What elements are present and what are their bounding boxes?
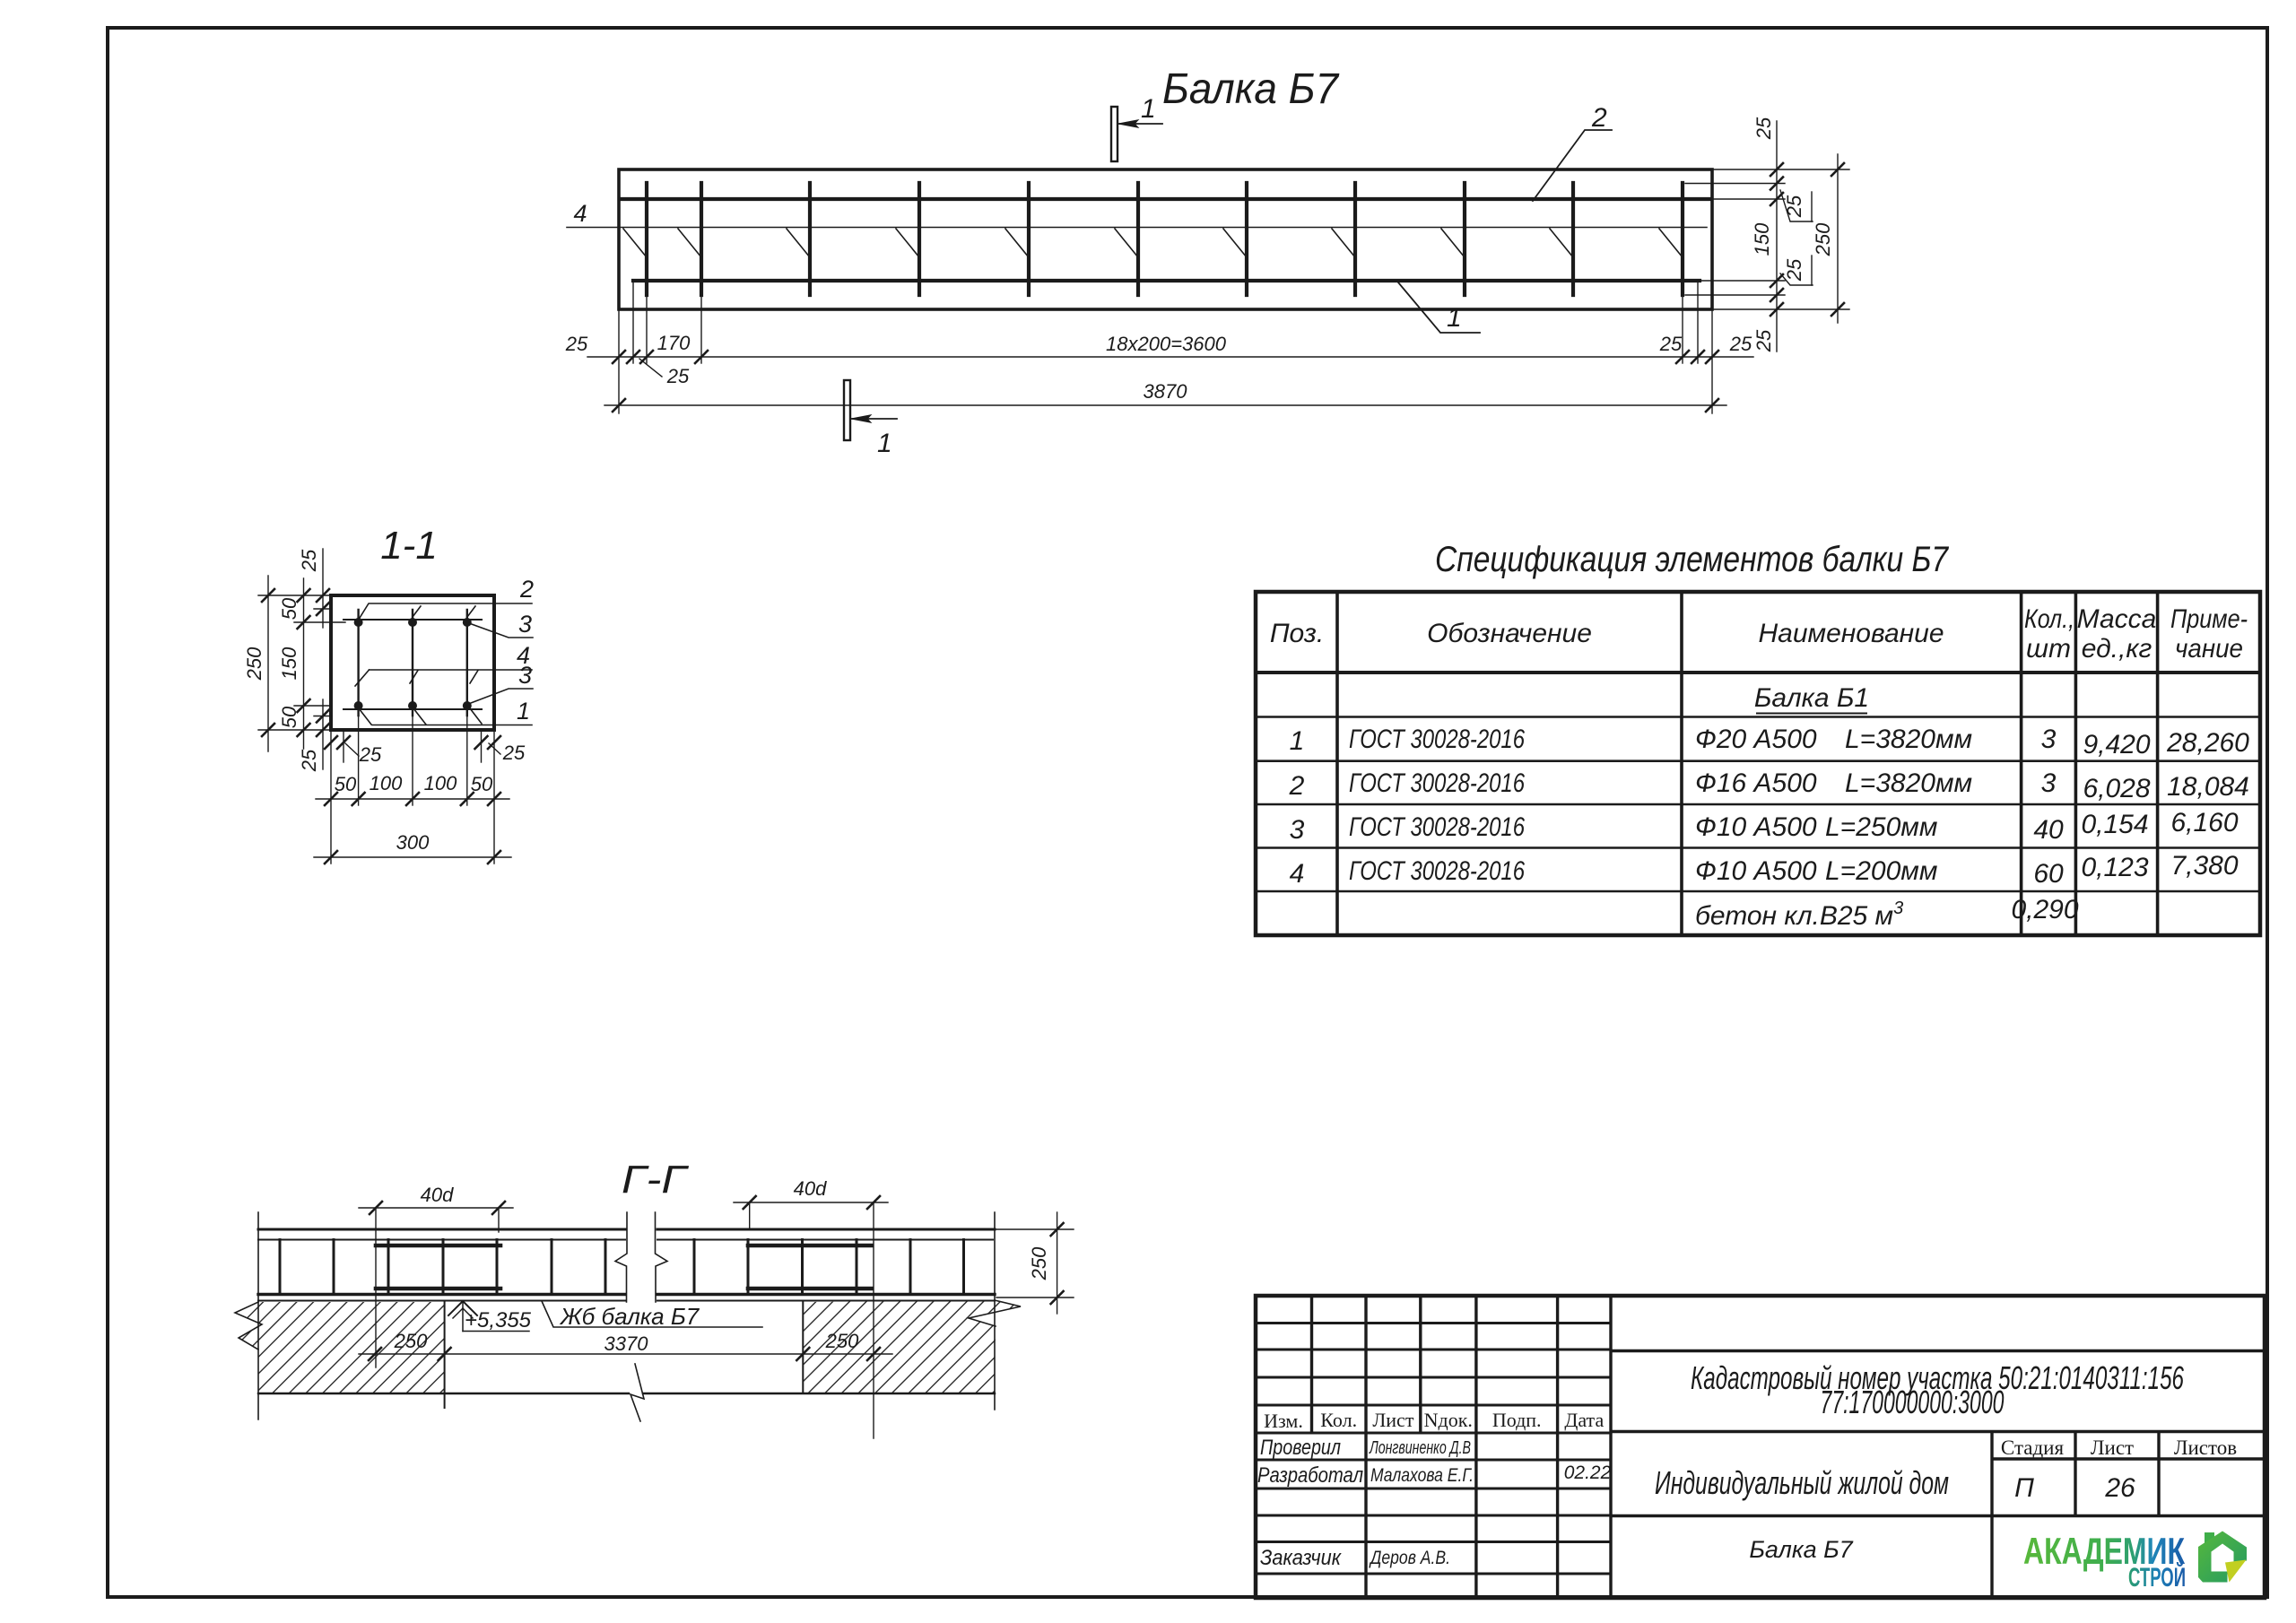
svg-text:Стадия: Стадия xyxy=(2001,1436,2065,1459)
svg-text:1-1: 1-1 xyxy=(380,524,438,568)
svg-text:1: 1 xyxy=(1141,94,1156,124)
svg-text:26: 26 xyxy=(2104,1473,2135,1503)
svg-text:2: 2 xyxy=(1591,103,1607,133)
svg-text:25: 25 xyxy=(565,333,588,355)
svg-text:250: 250 xyxy=(825,1330,859,1352)
svg-text:Подп.: Подп. xyxy=(1492,1409,1542,1431)
svg-text:77:170000000:3000: 77:170000000:3000 xyxy=(1821,1384,2005,1420)
svg-text:25: 25 xyxy=(1783,258,1805,282)
svg-text:25: 25 xyxy=(1752,117,1775,140)
svg-text:25: 25 xyxy=(359,743,382,766)
svg-text:Ф10 А500: Ф10 А500 xyxy=(1695,856,1817,886)
svg-text:1: 1 xyxy=(1447,303,1462,333)
svg-text:250: 250 xyxy=(243,647,265,681)
svg-text:Кол.,: Кол., xyxy=(2024,604,2074,634)
svg-text:Ф10 А500: Ф10 А500 xyxy=(1695,812,1817,842)
svg-text:25: 25 xyxy=(502,742,526,764)
svg-text:0,154: 0,154 xyxy=(2081,810,2148,839)
svg-text:0,123: 0,123 xyxy=(2081,853,2148,882)
svg-text:0,290: 0,290 xyxy=(2011,895,2078,924)
svg-text:50: 50 xyxy=(471,773,493,795)
svg-text:3: 3 xyxy=(1290,815,1305,845)
svg-text:25: 25 xyxy=(666,365,690,387)
svg-text:Г-Г: Г-Г xyxy=(622,1158,690,1202)
svg-text:Обозначение: Обозначение xyxy=(1427,619,1592,648)
svg-text:Индивидуальный жилой дом: Индивидуальный жилой дом xyxy=(1655,1464,1949,1501)
svg-text:Ф20 А500: Ф20 А500 xyxy=(1695,725,1817,754)
svg-text:7,380: 7,380 xyxy=(2170,851,2238,881)
svg-text:300: 300 xyxy=(396,831,430,854)
svg-text:40d: 40d xyxy=(794,1177,827,1200)
svg-text:50: 50 xyxy=(335,773,357,795)
svg-text:Малахова Е.Г.: Малахова Е.Г. xyxy=(1370,1465,1474,1486)
svg-text:4: 4 xyxy=(1290,859,1305,889)
svg-text:25: 25 xyxy=(1783,195,1805,218)
svg-text:Спецификация элементов балки Б: Спецификация элементов балки Б7 xyxy=(1435,540,1949,579)
svg-text:2: 2 xyxy=(519,576,534,603)
svg-text:Ф16 А500: Ф16 А500 xyxy=(1695,768,1817,798)
svg-text:250: 250 xyxy=(1812,222,1834,256)
svg-text:Приме-: Приме- xyxy=(2170,604,2248,634)
svg-text:бетон кл.В25 м3: бетон кл.В25 м3 xyxy=(1695,898,1903,931)
svg-text:ГОСТ 30028-2016: ГОСТ 30028-2016 xyxy=(1349,856,1525,886)
svg-text:6,160: 6,160 xyxy=(2170,808,2238,838)
svg-text:L=200мм: L=200мм xyxy=(1825,856,1937,886)
svg-text:18х200=3600: 18х200=3600 xyxy=(1106,333,1227,355)
svg-text:Деров А.В.: Деров А.В. xyxy=(1369,1548,1450,1568)
svg-text:чание: чание xyxy=(2175,634,2243,664)
svg-text:Листов: Листов xyxy=(2174,1436,2237,1459)
svg-text:25: 25 xyxy=(1729,333,1752,355)
svg-text:150: 150 xyxy=(1751,222,1773,256)
svg-text:Заказчик: Заказчик xyxy=(1260,1546,1343,1570)
svg-text:L=3820мм: L=3820мм xyxy=(1845,725,1972,754)
svg-text:4: 4 xyxy=(573,200,587,227)
svg-text:Разработал: Разработал xyxy=(1257,1463,1363,1488)
svg-text:40d: 40d xyxy=(421,1184,454,1206)
svg-text:3: 3 xyxy=(518,611,532,638)
svg-text:L=250мм: L=250мм xyxy=(1825,812,1937,842)
svg-text:ГОСТ 30028-2016: ГОСТ 30028-2016 xyxy=(1349,768,1525,798)
svg-text:3: 3 xyxy=(518,662,532,689)
svg-text:ед.,кг: ед.,кг xyxy=(2082,634,2152,664)
svg-text:250: 250 xyxy=(1028,1246,1050,1280)
svg-text:9,420: 9,420 xyxy=(2083,730,2150,759)
svg-text:50: 50 xyxy=(278,597,300,620)
svg-text:25: 25 xyxy=(298,549,320,572)
svg-text:Жб балка Б7: Жб балка Б7 xyxy=(559,1303,700,1330)
svg-text:Лонгвиненко Д.В: Лонгвиненко Д.В xyxy=(1369,1438,1471,1458)
svg-text:250: 250 xyxy=(394,1330,428,1352)
svg-text:100: 100 xyxy=(370,772,403,794)
svg-text:1: 1 xyxy=(1290,726,1305,756)
svg-text:28,260: 28,260 xyxy=(2166,728,2249,758)
svg-text:3870: 3870 xyxy=(1144,380,1188,403)
svg-text:Дата: Дата xyxy=(1564,1409,1604,1431)
svg-text:Изм.: Изм. xyxy=(1264,1410,1303,1432)
svg-text:Кол.: Кол. xyxy=(1320,1409,1357,1431)
svg-text:+5,355: +5,355 xyxy=(465,1308,532,1332)
svg-text:шт: шт xyxy=(2026,634,2071,664)
svg-text:СТРОЙ: СТРОЙ xyxy=(2128,1562,2186,1593)
svg-text:1: 1 xyxy=(517,698,530,725)
svg-text:150: 150 xyxy=(278,647,300,680)
svg-text:50: 50 xyxy=(278,706,300,728)
svg-text:L=3820мм: L=3820мм xyxy=(1845,768,1972,798)
svg-text:Балка Б1: Балка Б1 xyxy=(1754,683,1869,713)
svg-text:6,028: 6,028 xyxy=(2083,774,2150,803)
svg-text:Nдок.: Nдок. xyxy=(1424,1409,1473,1431)
svg-text:02.22: 02.22 xyxy=(1564,1462,1612,1483)
svg-text:Балка Б7: Балка Б7 xyxy=(1749,1536,1853,1563)
svg-text:Проверил: Проверил xyxy=(1260,1436,1341,1460)
svg-text:25: 25 xyxy=(298,749,320,772)
svg-text:25: 25 xyxy=(1752,329,1775,352)
svg-text:18,084: 18,084 xyxy=(2167,772,2249,802)
svg-text:Лист: Лист xyxy=(2091,1436,2134,1459)
svg-text:60: 60 xyxy=(2033,859,2064,889)
svg-text:Наименование: Наименование xyxy=(1758,619,1944,648)
svg-text:3: 3 xyxy=(2041,725,2057,754)
svg-text:100: 100 xyxy=(424,772,457,794)
svg-text:ГОСТ 30028-2016: ГОСТ 30028-2016 xyxy=(1349,725,1525,754)
svg-text:1: 1 xyxy=(877,429,892,458)
svg-text:Поз.: Поз. xyxy=(1270,619,1324,648)
svg-text:П: П xyxy=(2014,1473,2034,1503)
svg-text:2: 2 xyxy=(1289,771,1305,801)
svg-text:40: 40 xyxy=(2033,815,2064,845)
svg-text:3: 3 xyxy=(2041,768,2057,798)
svg-text:Балка Б7: Балка Б7 xyxy=(1162,65,1340,113)
svg-text:ГОСТ 30028-2016: ГОСТ 30028-2016 xyxy=(1349,812,1525,842)
svg-text:3370: 3370 xyxy=(604,1332,649,1355)
svg-text:170: 170 xyxy=(657,332,691,354)
svg-text:Масса: Масса xyxy=(2077,604,2157,634)
svg-text:25: 25 xyxy=(1659,333,1683,355)
svg-text:Лист: Лист xyxy=(1372,1409,1413,1431)
